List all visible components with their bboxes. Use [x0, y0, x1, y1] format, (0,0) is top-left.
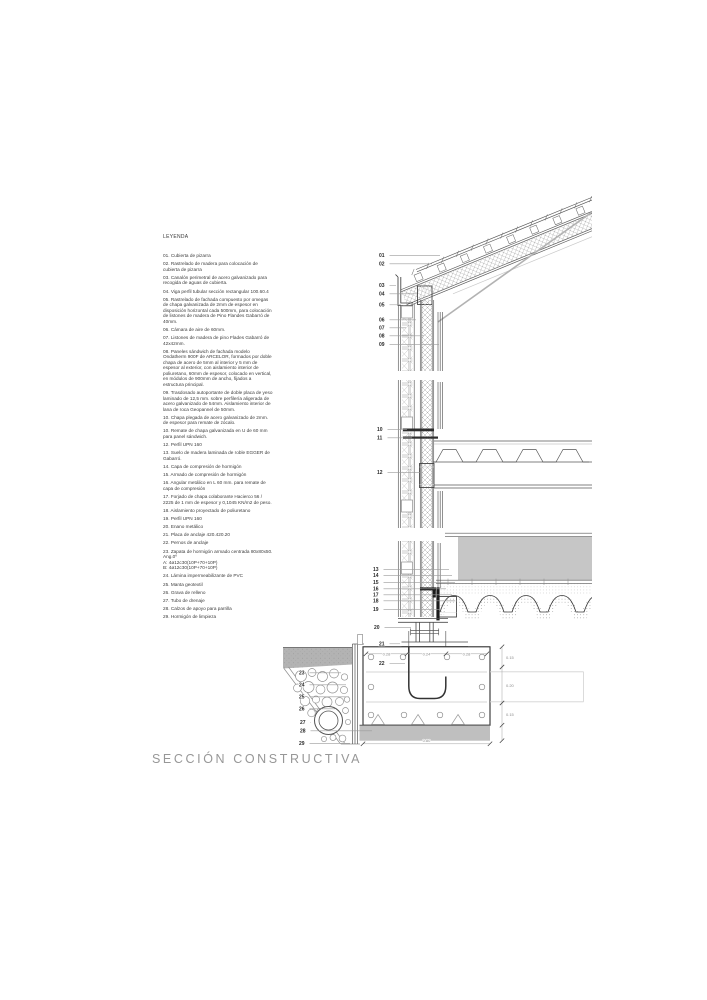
- callout-number: 05: [379, 303, 385, 309]
- dimension-value: 0.20: [506, 683, 515, 688]
- upper-wall-block: [458, 537, 592, 581]
- rebar-elevation-ghost: [490, 672, 584, 702]
- callout-number: 11: [377, 436, 383, 442]
- callout-number: 01: [379, 253, 385, 259]
- callout-number: 21: [379, 642, 385, 648]
- callout-number: 23: [299, 671, 305, 677]
- dimension-value: 0.15: [506, 655, 515, 660]
- callout-number: 09: [379, 342, 385, 348]
- stub-column: [398, 619, 468, 648]
- page-title: SECCIÓN CONSTRUCTIVA: [152, 752, 362, 766]
- drawing-sheet: LEYENDA 01. Cubierta de pizarra02. Rastr…: [0, 0, 707, 1000]
- wall-middle-segment: [398, 380, 442, 528]
- callout-number: 15: [373, 580, 379, 586]
- callout-number: 28: [300, 729, 306, 735]
- dimension-value: 0.24: [423, 652, 432, 657]
- callout-number: 27: [300, 720, 306, 726]
- dimension-value: 0.28: [383, 652, 392, 657]
- drawing-linework: [283, 196, 607, 746]
- dimension-value: 0.28: [463, 652, 472, 657]
- callout-number: 18: [373, 599, 379, 605]
- callout-number: 24: [299, 683, 305, 689]
- wall-top-segment: [398, 300, 442, 371]
- callout-number: 19: [373, 607, 379, 613]
- terrain: [283, 648, 352, 669]
- callout-number: 25: [299, 695, 305, 701]
- callout-number: 03: [379, 283, 385, 289]
- callout-number: 29: [299, 741, 305, 747]
- ground-floor-slab: [420, 533, 598, 620]
- callout-number: 14: [373, 573, 379, 579]
- wall-ground-segment: [398, 541, 440, 617]
- callout-number: 02: [379, 262, 385, 268]
- dimension-value: 0.80: [423, 738, 432, 743]
- callout-number: 26: [299, 707, 305, 713]
- callout-number: 04: [379, 292, 385, 298]
- dimension-value: 0.15: [506, 712, 515, 717]
- callout-number: 22: [379, 661, 385, 667]
- excavation: [283, 635, 364, 745]
- callout-number: 07: [379, 326, 385, 332]
- callout-number: 20: [374, 625, 380, 631]
- callout-number: 10: [377, 427, 383, 433]
- roof-assembly: [395, 196, 607, 312]
- construction-section-drawing: 0102030405060708091011121314151617181920…: [0, 0, 707, 1000]
- callout-number: 08: [379, 334, 385, 340]
- callout-number: 12: [377, 470, 383, 476]
- callout-number: 06: [379, 318, 385, 324]
